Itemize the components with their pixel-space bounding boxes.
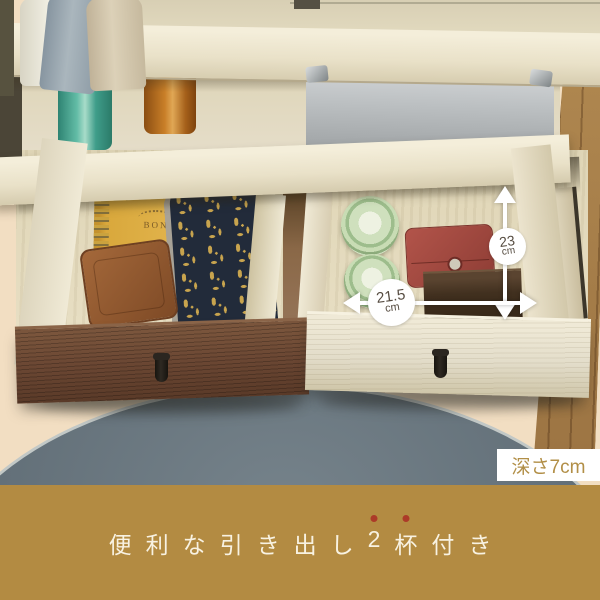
photo-scene: BONNE 23 cm <box>0 0 600 485</box>
caption-char-emphasized: 2 <box>368 526 381 560</box>
width-dimension-label: 21.5 cm <box>368 279 415 326</box>
top-notch-shadow <box>294 0 320 9</box>
caption-char-emphasized: 杯 <box>394 526 417 560</box>
caption-char: な <box>183 526 206 560</box>
caption-char: 引 <box>220 526 243 560</box>
drawer-knob-right <box>434 351 447 378</box>
box-corner-bracket <box>529 69 553 88</box>
height-dimension-label: 23 cm <box>489 228 526 265</box>
caption-text: 便利な引き出し2杯付き <box>102 526 499 560</box>
side-panel-shadow <box>0 0 14 96</box>
caption-band: 便利な引き出し2杯付き <box>0 485 600 600</box>
caption-char: き <box>468 526 491 560</box>
brown-leather-case <box>79 238 179 330</box>
box-corner-bracket <box>305 65 329 83</box>
leather-stitch-line <box>92 252 165 317</box>
top-seam-line <box>290 2 600 4</box>
drawer-knob-left <box>155 355 168 382</box>
caption-char: 便 <box>109 526 132 560</box>
caption-char: 付 <box>431 526 454 560</box>
caption-char: し <box>331 526 354 560</box>
height-unit: cm <box>500 247 517 258</box>
caption-char: き <box>257 526 280 560</box>
green-glass-jar <box>341 196 399 256</box>
depth-badge: 深さ7cm <box>497 449 600 481</box>
fabric-roll-beige <box>86 0 147 91</box>
caption-char: 利 <box>146 526 169 560</box>
product-image: BONNE 23 cm <box>0 0 600 600</box>
caption-char: 出 <box>294 526 317 560</box>
